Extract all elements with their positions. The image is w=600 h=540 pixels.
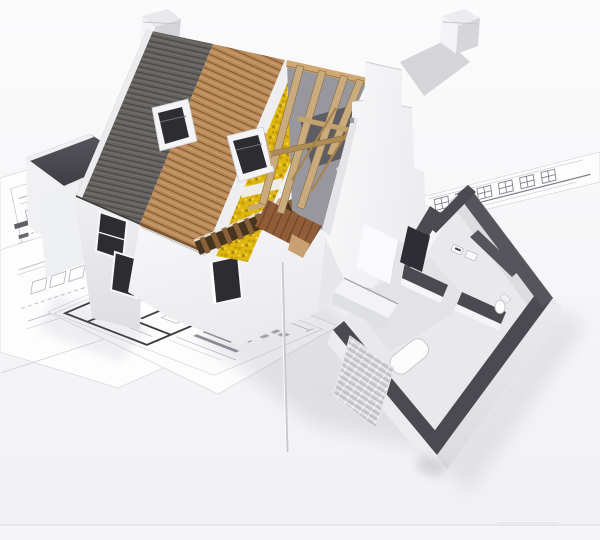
- gable-bracket-mark: [350, 118, 354, 123]
- gable-window-upper: [96, 212, 127, 260]
- render-canvas: [0, 0, 600, 540]
- background-bottom-smudge: [498, 522, 558, 524]
- architectural-render: [0, 0, 600, 540]
- front-window: [211, 256, 242, 304]
- background-bottom-line-1: [0, 519, 600, 520]
- background-bottom-band: [0, 526, 600, 540]
- background-bottom-line-2: [0, 525, 600, 527]
